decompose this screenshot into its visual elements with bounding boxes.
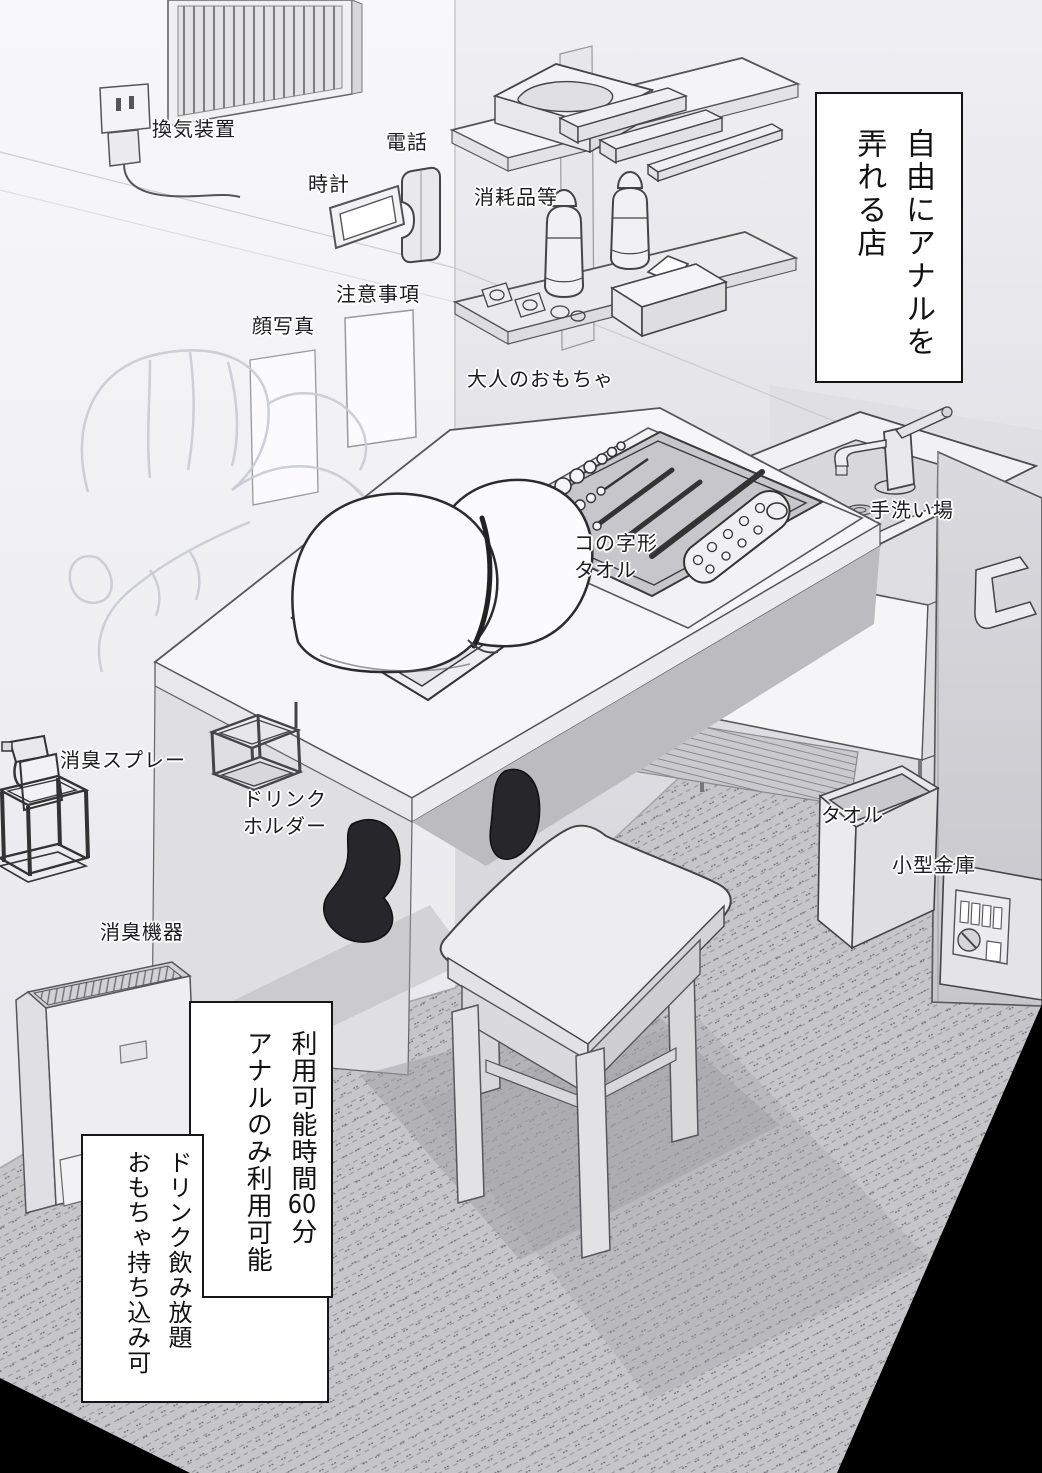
label-adult-toys: 大人のおもちゃ bbox=[467, 366, 614, 393]
title-line-2: 弄れる店 bbox=[844, 128, 893, 371]
label-towel: タオル bbox=[821, 802, 884, 829]
label-u-towel: コの字形 タオル bbox=[574, 530, 658, 584]
label-consumables: 消耗品等 bbox=[474, 184, 558, 211]
label-phone: 電話 bbox=[386, 129, 428, 156]
info-text-drinks: ドリンク飲み放題 おもちゃ持ち込み可 bbox=[88, 1142, 198, 1394]
drinks-line-2: おもちゃ持ち込み可 bbox=[115, 1150, 156, 1394]
hours-line-2: アナルのみ利用可能 bbox=[235, 1030, 280, 1290]
label-deodorant-spray: 消臭スプレー bbox=[60, 747, 186, 774]
label-face-photo: 顔写真 bbox=[252, 313, 315, 340]
title-text: 自由にアナルを 弄れる店 bbox=[817, 94, 961, 381]
face-photo-poster bbox=[250, 350, 318, 505]
label-drink-holder: ドリンク ホルダー bbox=[243, 786, 327, 840]
notes-poster bbox=[345, 310, 416, 447]
title-box: 自由にアナルを 弄れる店 bbox=[815, 92, 963, 383]
label-small-safe: 小型金庫 bbox=[892, 852, 976, 879]
small-safe bbox=[940, 862, 1042, 1000]
label-clock: 時計 bbox=[308, 171, 350, 198]
label-deodorizer: 消臭機器 bbox=[100, 919, 184, 946]
title-line-1: 自由にアナルを bbox=[892, 128, 941, 371]
label-notes: 注意事項 bbox=[336, 281, 420, 308]
hours-number: 60 bbox=[287, 1192, 317, 1218]
info-text-hours: 利用可能時間60分 アナルのみ利用可能 bbox=[198, 1008, 324, 1290]
drinks-line-1: ドリンク飲み放題 bbox=[157, 1150, 198, 1394]
label-ventilation: 換気装置 bbox=[152, 116, 236, 143]
label-hand-wash: 手洗い場 bbox=[870, 497, 954, 524]
room-illustration: 自由にアナルを 弄れる店 利用可能時間60分 アナルのみ利用可能 ドリンク飲み放… bbox=[0, 0, 1042, 1473]
hours-line-1: 利用可能時間60分 bbox=[279, 1030, 324, 1290]
